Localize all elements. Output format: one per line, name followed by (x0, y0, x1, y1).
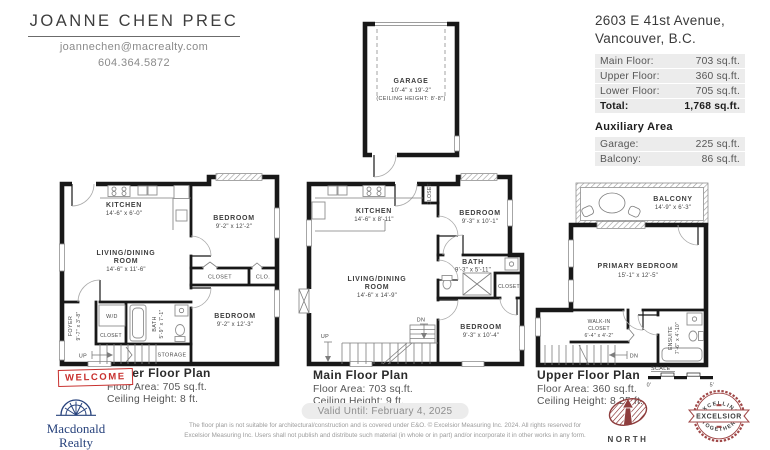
walkin-dims: 6'-4" x 4'-2" (584, 333, 613, 339)
main-bath-dims: 9'-3" x 5'-11" (455, 268, 491, 274)
welcome-stamp: WELCOME (58, 368, 133, 387)
garage-label: GARAGE (394, 78, 429, 85)
garage-window (454, 136, 459, 151)
lower-living-label-1: LIVING/DINING (97, 250, 156, 257)
area-value: 705 sq.ft. (696, 86, 740, 97)
macdonald-wordmark-line2: Realty (33, 436, 119, 450)
lower-bath-label: BATH (152, 316, 158, 332)
lower-bath-dims: 5'-9" x 7'-1" (159, 309, 165, 338)
lower-kitchen-dims: 14'-6" x 6'-0" (106, 211, 142, 217)
auxiliary-heading: Auxiliary Area (595, 121, 745, 133)
lower-interior-walls (62, 184, 277, 364)
main-up-label: UP (321, 334, 329, 340)
main-kitchen-label: KITCHEN (356, 208, 392, 215)
lower-bedroom-bottom-label: BEDROOM (214, 313, 255, 320)
agent-name: JOANNE CHEN PREC (28, 12, 240, 37)
scale-start: 0' (647, 383, 652, 389)
main-kitchen-dims: 14'-6" x 8'-11" (354, 217, 393, 223)
main-plan-title-block: Main Floor Plan Floor Area: 703 sq.ft. C… (313, 368, 413, 407)
lower-closet-label: CLOSET (208, 275, 232, 281)
main-stairs (324, 324, 438, 364)
lower-closet2-label: CLOSET (100, 333, 122, 339)
garage-plan-svg: GARAGE 10'-4" x 19'-2" (CEILING HEIGHT: … (360, 18, 462, 180)
garage-door-opening (375, 21, 447, 98)
address-line-1: 2603 E 41st Avenue, (595, 12, 745, 30)
area-label: Main Floor: (600, 56, 654, 67)
area-value: 703 sq.ft. (696, 56, 740, 67)
aux-value: 225 sq.ft. (696, 139, 740, 150)
upper-plan-title: Upper Floor Plan (537, 368, 643, 382)
macdonald-wordmark-line1: Macdonald (33, 422, 119, 436)
balcony-label: BALCONY (653, 196, 693, 203)
north-compass: NORTH (604, 397, 652, 444)
north-compass-icon (604, 397, 652, 429)
north-label: NORTH (604, 435, 652, 444)
walkin-label-1: WALK-IN (588, 319, 611, 325)
ensuite-dims: 7'-6" x 4'-10" (675, 322, 681, 354)
balcony-dims: 14'-9" x 6'-3" (655, 205, 691, 211)
area-row-main: Main Floor: 703 sq.ft. (595, 54, 745, 68)
total-label: Total: (600, 101, 628, 112)
main-living-label-1: LIVING/DINING (348, 276, 407, 283)
main-bedroom-bottom-label: BEDROOM (460, 324, 501, 331)
agent-card: JOANNE CHEN PREC joannechen@macrealty.co… (28, 12, 240, 69)
garage-ceiling: (CEILING HEIGHT: 8'-8") (376, 96, 445, 102)
main-closet-top-label: CLOSET (427, 183, 433, 205)
excelsior-seal: EXCELLING TOGETHER EXCELSIOR (687, 389, 751, 450)
lower-plan-ceiling: Ceiling Height: 8 ft. (107, 394, 211, 405)
lower-room-labels: KITCHEN 14'-6" x 6'-0" BEDROOM 9'-2" x 1… (68, 202, 270, 360)
main-bath-label: BATH (462, 259, 484, 266)
macdonald-realty-logo: Macdonald Realty (33, 399, 119, 449)
balcony (576, 183, 708, 225)
lower-doors (72, 181, 263, 308)
area-label: Upper Floor: (600, 71, 660, 82)
address: 2603 E 41st Avenue, Vancouver, B.C. (595, 12, 745, 47)
area-label: Lower Floor: (600, 86, 660, 97)
main-plan-title: Main Floor Plan (313, 368, 413, 382)
macdonald-fan-icon (50, 399, 102, 417)
scale-end: 5' (710, 383, 715, 389)
walkin-label-2: CLOSET (588, 326, 610, 332)
lower-kitchen-label: KITCHEN (106, 202, 142, 209)
lower-up-label: UP (79, 354, 87, 360)
main-closet-right-label: CLOSET (498, 284, 520, 290)
page-root: JOANNE CHEN PREC joannechen@macrealty.co… (0, 0, 770, 450)
main-fireplace (299, 289, 312, 313)
lower-bedroom-bottom-dims: 9'-2" x 12'-3" (217, 322, 253, 328)
primary-bedroom-label: PRIMARY BEDROOM (598, 263, 679, 270)
lower-living-label-2: ROOM (114, 258, 139, 265)
main-bedroom-top-label: BEDROOM (459, 210, 500, 217)
main-bedroom-bottom-dims: 9'-3" x 10'-4" (463, 333, 499, 339)
agent-email: joannechen@macrealty.com (28, 41, 240, 53)
aux-row-garage: Garage: 225 sq.ft. (595, 137, 745, 151)
area-value: 360 sq.ft. (696, 71, 740, 82)
lower-foyer-label: FOYER (68, 316, 74, 337)
upper-stairs (545, 345, 627, 365)
lower-windows (59, 174, 279, 367)
lower-living-dims: 14'-6" x 11'-6" (106, 267, 145, 273)
scale-bar: SCALE 0' 5' (647, 366, 715, 389)
area-row-total: Total: 1,768 sq.ft. (595, 99, 745, 113)
lower-clo-label: CLO. (256, 275, 270, 281)
lower-storage-label: STORAGE (157, 353, 186, 359)
main-dn-label: DN (417, 318, 426, 324)
total-value: 1,768 sq.ft. (684, 101, 740, 112)
lower-outer-walls (62, 177, 277, 364)
area-row-lower: Lower Floor: 705 sq.ft. (595, 84, 745, 98)
garage-dims: 10'-4" x 19'-2" (391, 88, 431, 94)
main-room-labels: KITCHEN 14'-6" x 8'-11" CLOSET BEDROOM 9… (321, 183, 520, 340)
property-summary: 2603 E 41st Avenue, Vancouver, B.C. Main… (595, 12, 745, 167)
primary-bedroom-dims: 15'-1" x 12'-5" (618, 273, 658, 279)
lower-bedroom-top-dims: 9'-2" x 12'-2" (216, 224, 252, 230)
address-line-2: Vancouver, B.C. (595, 30, 745, 48)
ensuite-label: ENSUITE (668, 326, 674, 350)
valid-until-badge: Valid Until: February 4, 2025 (302, 403, 469, 419)
upper-plan-area: Floor Area: 360 sq.ft. (537, 384, 643, 395)
excelsior-seal-icon: EXCELLING TOGETHER EXCELSIOR (687, 389, 751, 447)
main-living-dims: 14'-6" x 14'-9" (357, 293, 397, 299)
main-bedroom-top-dims: 9'-3" x 10'-1" (462, 219, 498, 225)
lower-foyer-dims: 9'-7" x 3'-8" (76, 311, 82, 340)
agent-phone: 604.364.5872 (28, 57, 240, 69)
main-plan-area: Floor Area: 703 sq.ft. (313, 384, 413, 395)
area-table: Main Floor: 703 sq.ft. Upper Floor: 360 … (595, 54, 745, 113)
area-row-upper: Upper Floor: 360 sq.ft. (595, 69, 745, 83)
aux-label: Garage: (600, 139, 639, 150)
main-living-label-2: ROOM (365, 284, 390, 291)
excelsior-banner-text: EXCELSIOR (696, 414, 742, 421)
upper-dn-label: DN (630, 354, 639, 360)
lower-wd-label: W/D (106, 314, 118, 320)
lower-bedroom-top-label: BEDROOM (213, 215, 254, 222)
